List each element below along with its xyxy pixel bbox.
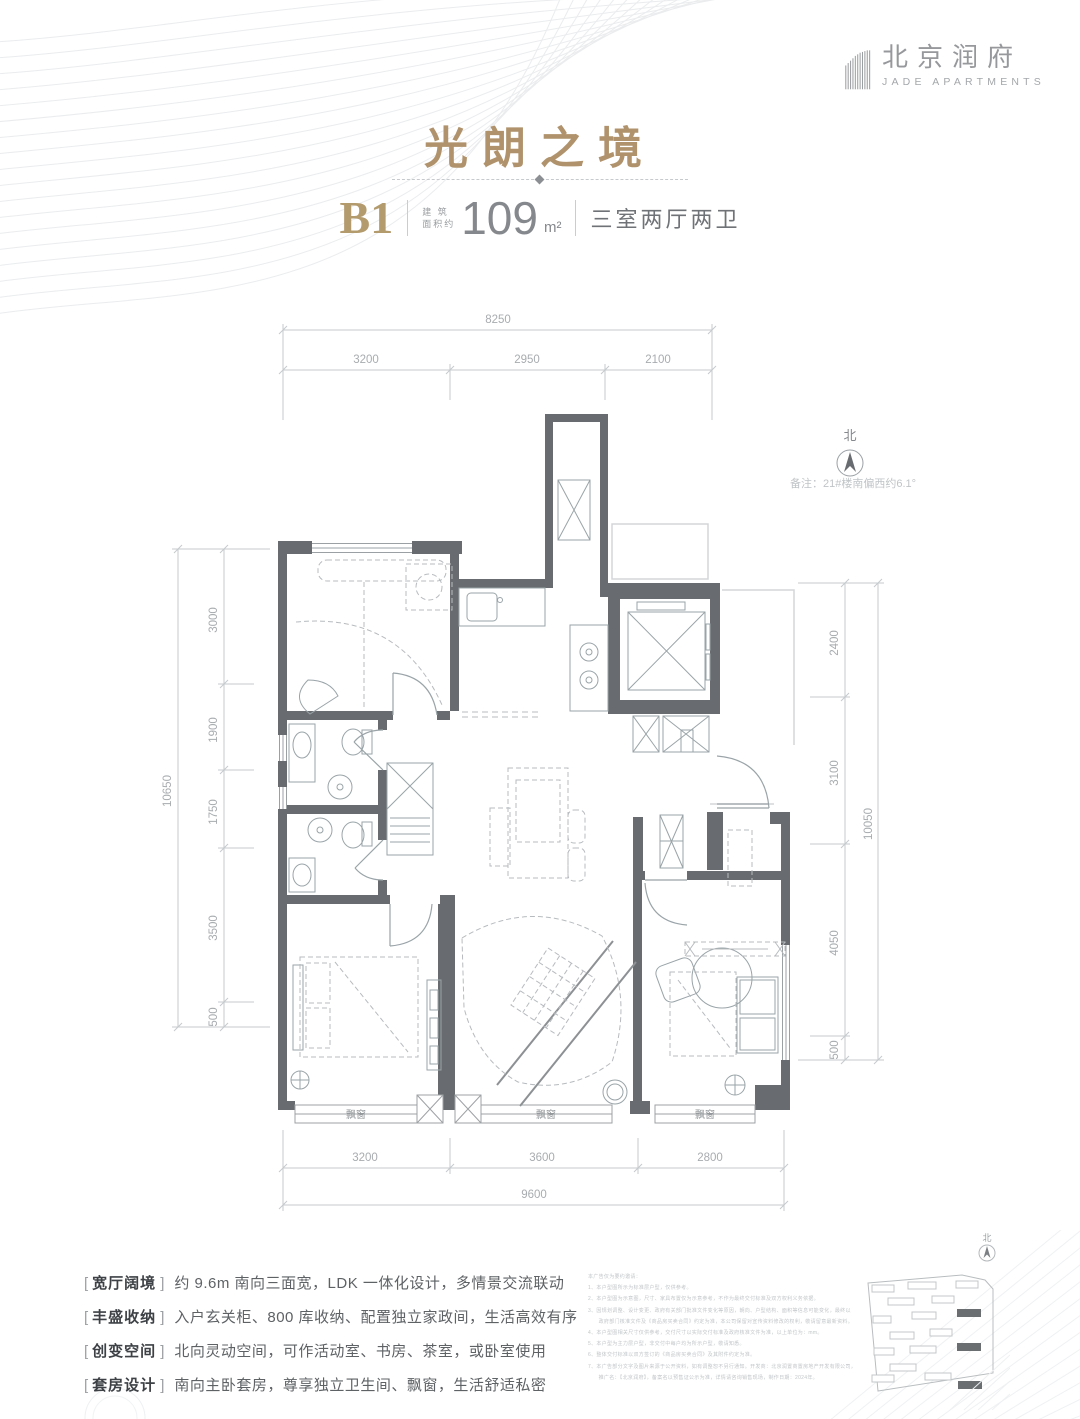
svg-text:3100: 3100 [829, 760, 841, 786]
svg-text:北: 北 [843, 428, 856, 443]
feature-tag: 创变空间 [88, 1340, 160, 1361]
feature-list: [宽厅阔境] 约 9.6m 南向三面宽，LDK 一体化设计，多情景交流联动 [丰… [84, 1272, 564, 1395]
feature-tag: 丰盛收纳 [88, 1306, 160, 1327]
unit-code: B1 [340, 196, 394, 240]
feature-desc: 北向灵动空间，可作活动室、书房、茶室，或卧室使用 [174, 1340, 546, 1361]
svg-text:北: 北 [982, 1233, 991, 1243]
area-value: 109 [461, 196, 538, 240]
unit-info-row: B1 建 筑 面积约 109 m² 三室两厅两卫 [0, 196, 1080, 240]
brand-name-en: JADE APARTMENTS [882, 76, 1045, 88]
title-divider [392, 176, 688, 184]
svg-text:4050: 4050 [829, 930, 841, 956]
svg-text:3200: 3200 [353, 354, 379, 366]
svg-text:500: 500 [829, 1040, 841, 1059]
svg-text:1750: 1750 [208, 799, 220, 825]
dimension-labels: 8250 3200 2950 2100 10650 3000 1900 1750… [162, 314, 875, 1201]
bay-window-label: 飘窗 [536, 1108, 556, 1121]
svg-text:9600: 9600 [521, 1189, 547, 1201]
unit-layout: 三室两厅两卫 [590, 202, 740, 234]
brand-name-cn: 北京润府 [882, 42, 1045, 72]
svg-text:500: 500 [208, 1007, 220, 1026]
plan-note: 备注：21#楼南偏西约6.1° [790, 476, 916, 490]
svg-text:2400: 2400 [829, 630, 841, 656]
disclaimer-line: 推广名：【北京润府】，备案名以预售证公示为准，详情请咨询销售现场，制作日期：20… [588, 1373, 860, 1384]
svg-text:2100: 2100 [645, 354, 671, 366]
disclaimer-line: 5、本户型为主力层户型，非交付中每户均为所示户型，敬请知悉。 [588, 1339, 860, 1350]
north-arrow: 北 [837, 428, 863, 476]
brand-logo: 北京润府 JADE APARTMENTS [845, 42, 1045, 112]
svg-text:2800: 2800 [697, 1152, 723, 1164]
feature-desc: 约 9.6m 南向三面宽，LDK 一体化设计，多情景交流联动 [174, 1272, 564, 1293]
disclaimer-block: 本广告仅为要约邀请： 1、本户型图所示为标准层户型，仅供参考。 2、本户型图为示… [588, 1272, 860, 1384]
disclaimer-line: 6、整体交付标准以双方签订的《商品房买卖合同》及其附件约定为准。 [588, 1350, 860, 1361]
svg-text:8250: 8250 [485, 314, 511, 326]
walls [278, 414, 790, 1114]
svg-text:3000: 3000 [208, 607, 220, 633]
fixtures [289, 480, 778, 1106]
public-corridor-outline [612, 524, 794, 804]
feature-tag: 宽厅阔境 [88, 1272, 160, 1293]
area-label-2: 面积约 [422, 219, 455, 229]
disclaimer-line: 1、本户型图所示为标准层户型，仅供参考。 [588, 1283, 860, 1294]
sitemap-buildings [872, 1281, 978, 1382]
bay-window-label: 飘窗 [695, 1108, 715, 1121]
feature-item: [丰盛收纳] 入户玄关柜、800 库收纳、配置独立家政间，生活高效有序 [84, 1306, 564, 1327]
site-map: 北 [860, 1225, 1010, 1410]
svg-text:1900: 1900 [208, 717, 220, 743]
feature-tag: 套房设计 [88, 1374, 160, 1395]
feature-item: [创变空间] 北向灵动空间，可作活动室、书房、茶室，或卧室使用 [84, 1340, 564, 1361]
svg-text:10650: 10650 [162, 775, 174, 807]
sitemap-north-arrow: 北 [979, 1233, 995, 1261]
disclaimer-line: 政府部门核准文件及《商品房买卖合同》约定为准，本公司保留对宣传资料修改的权利，敬… [588, 1317, 860, 1328]
disclaimer-line: 3、因规划调整、设计变更、政府有关部门批准文件变化等原因，朝向、户型结构、面积等… [588, 1306, 860, 1317]
feature-item: [套房设计] 南向主卧套房，尊享独立卫生间、飘窗，生活舒适私密 [84, 1374, 564, 1395]
divider-diamond-icon [535, 175, 545, 185]
disclaimer-line: 2、本户型图为示意图，尺寸、家具布置仅为示意参考，不作为最终交付标准及双方权利义… [588, 1294, 860, 1305]
disclaimer-line: 7、本广告部分文字及图片来源于公开资料，如有调整恕不另行通知。开发商：北京润置商… [588, 1362, 860, 1373]
separator-line [407, 200, 408, 236]
disclaimer-line: 本广告仅为要约邀请： [588, 1272, 860, 1283]
disclaimer-line: 4、本户型图相关尺寸仅供参考，交付尺寸以实际交付标准及政府核准文件为准，以上单位… [588, 1328, 860, 1339]
separator-line [575, 200, 576, 236]
unit-area: 建 筑 面积约 109 m² [422, 196, 561, 240]
svg-text:3500: 3500 [208, 915, 220, 941]
page-title: 光朗之境 [0, 112, 1080, 176]
feature-desc: 南向主卧套房，尊享独立卫生间、飘窗，生活舒适私密 [174, 1374, 546, 1395]
page: 北京润府 JADE APARTMENTS 光朗之境 B1 建 筑 面积约 109… [0, 0, 1080, 1419]
svg-text:10050: 10050 [863, 808, 875, 840]
floor-plan: 8250 3200 2950 2100 10650 3000 1900 1750… [150, 290, 1050, 1230]
svg-text:2950: 2950 [514, 354, 540, 366]
svg-text:3600: 3600 [529, 1152, 555, 1164]
svg-text:3200: 3200 [352, 1152, 378, 1164]
area-label-1: 建 筑 [422, 207, 455, 217]
logo-bars-icon [845, 42, 872, 100]
feature-desc: 入户玄关柜、800 库收纳、配置独立家政间，生活高效有序 [174, 1306, 577, 1327]
bay-window-label: 飘窗 [346, 1108, 366, 1121]
feature-item: [宽厅阔境] 约 9.6m 南向三面宽，LDK 一体化设计，多情景交流联动 [84, 1272, 564, 1293]
area-unit: m² [544, 219, 562, 236]
